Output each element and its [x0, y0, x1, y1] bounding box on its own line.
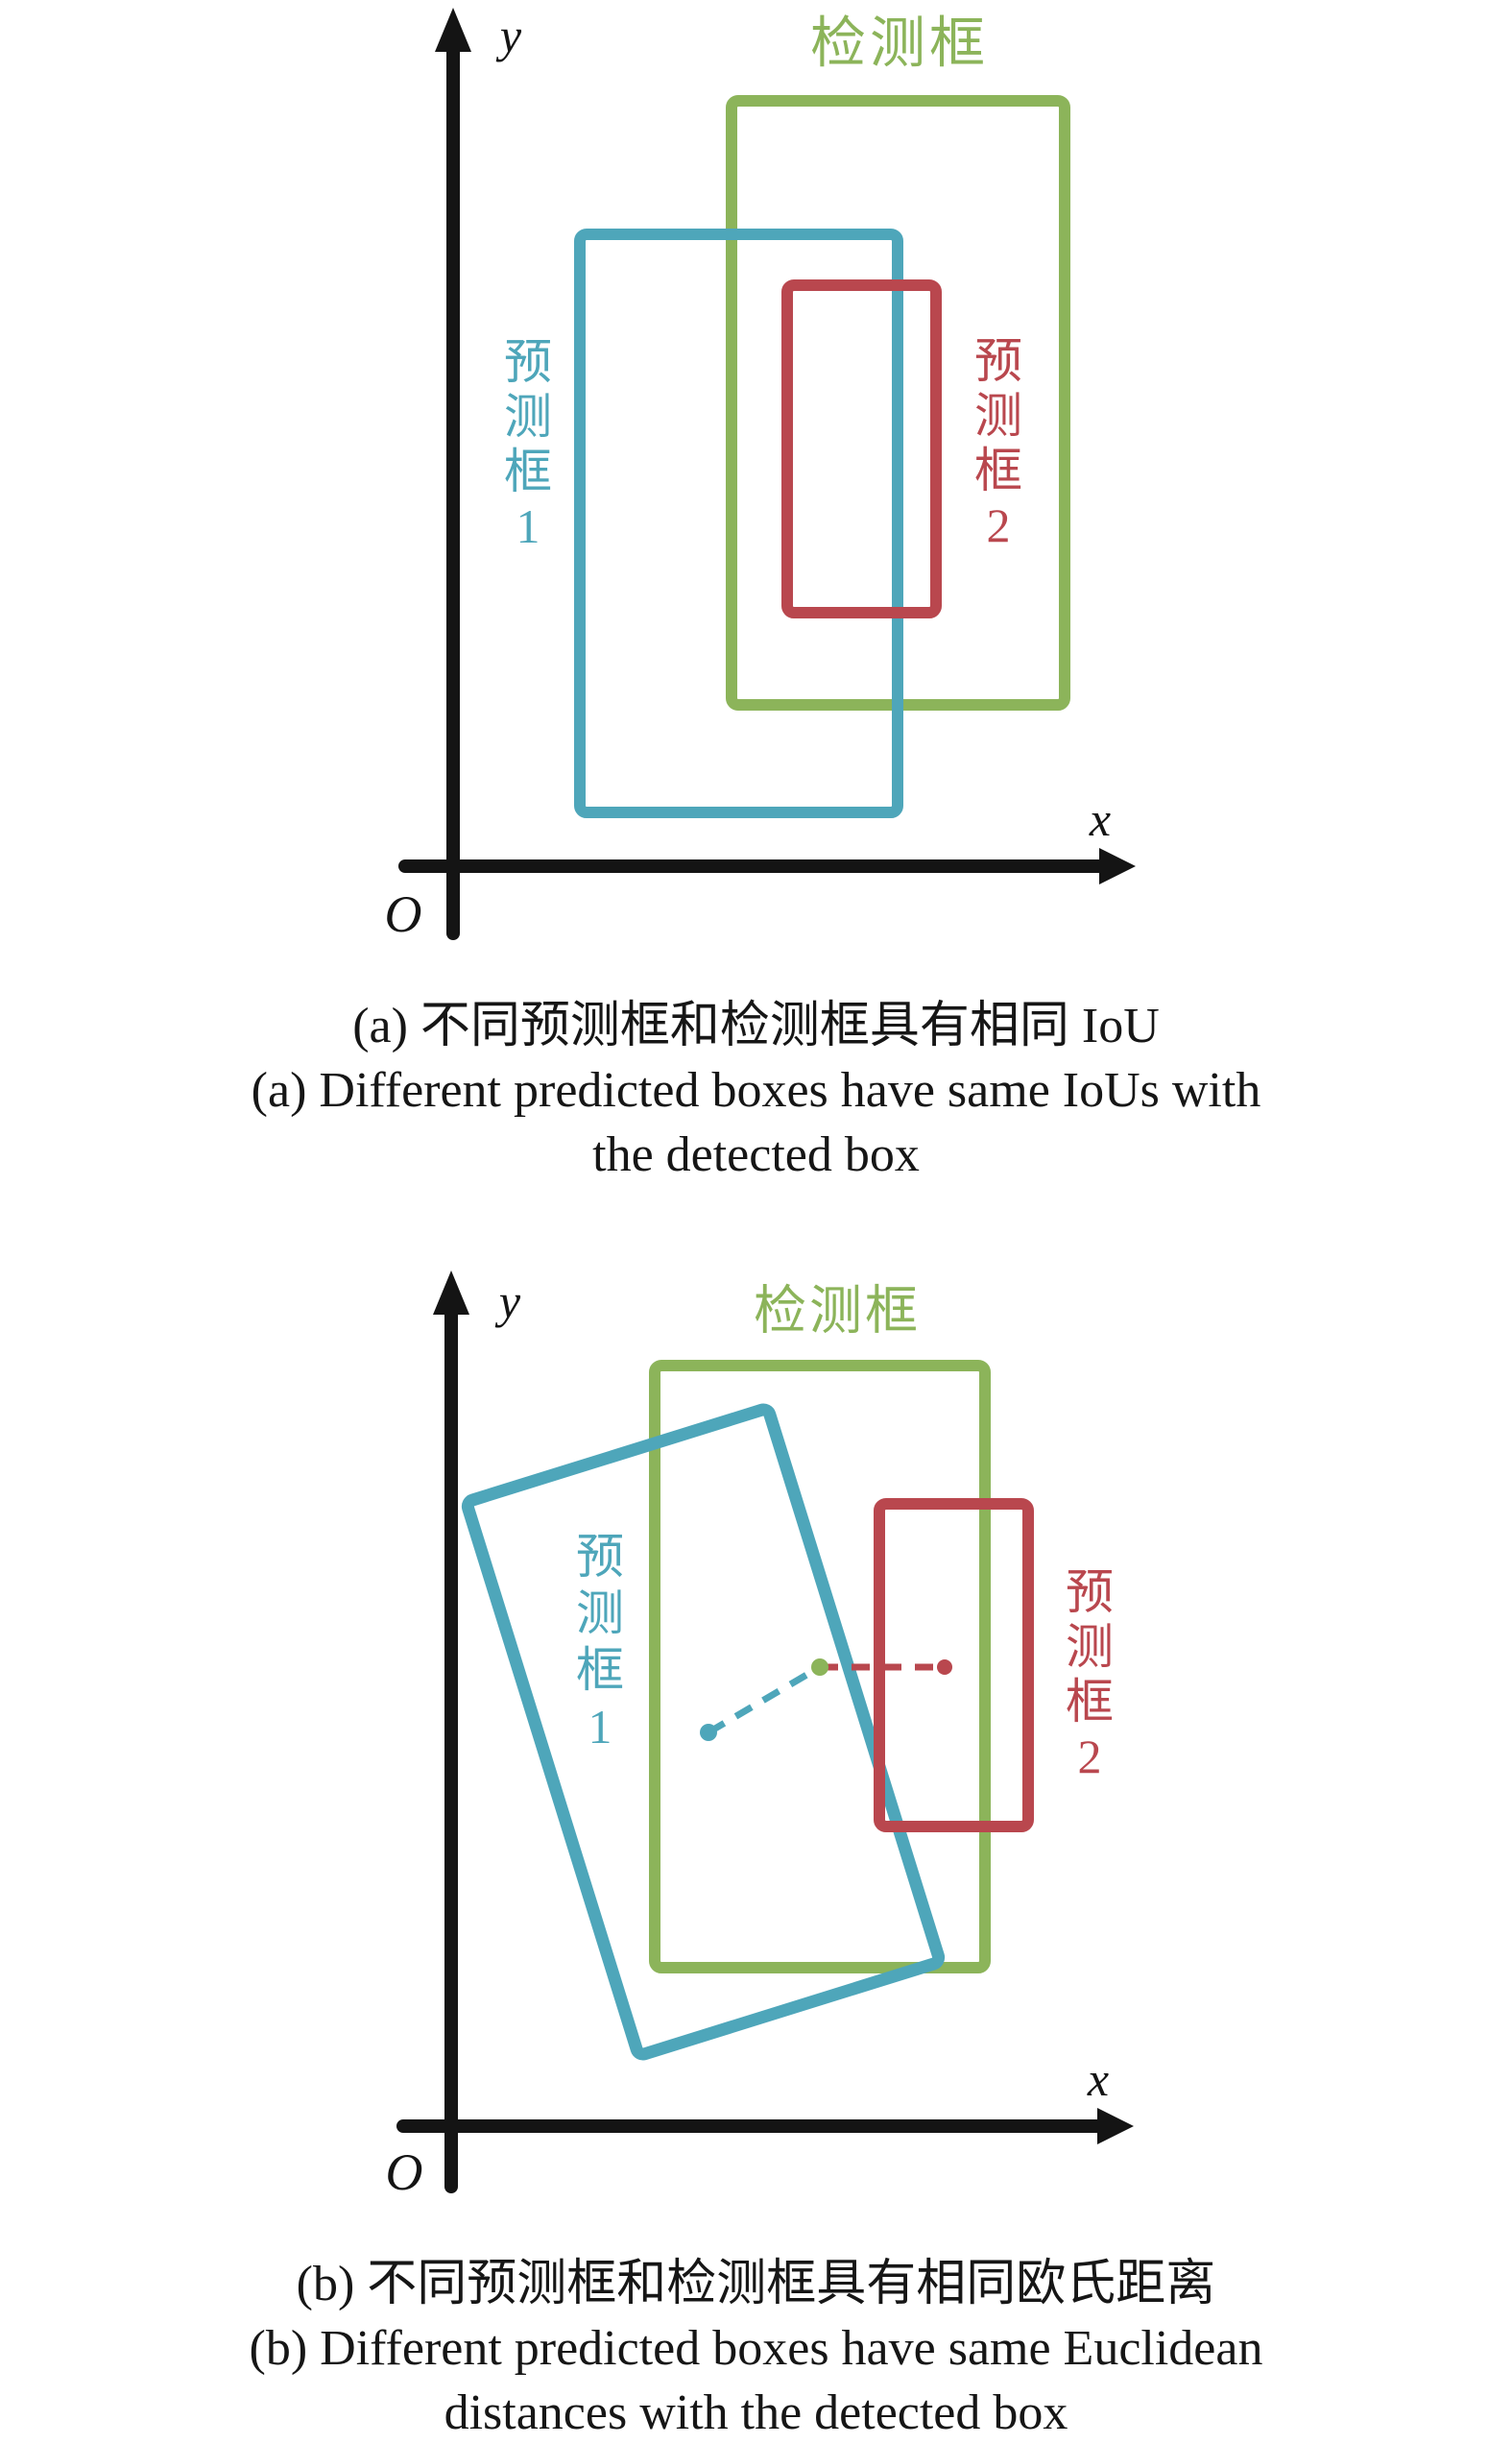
panel-b-detected-box-label: 检测框: [754, 1282, 921, 1341]
caption-b-line-en1: (b) Different predicted boxes have same …: [0, 2316, 1512, 2381]
panel-a-origin-label: O: [385, 885, 422, 943]
panel-a-x-axis-label: x: [1089, 792, 1111, 846]
panel-a-predicted-box-1-label-char-3: 1: [516, 499, 540, 553]
panel-a-predicted-box-2-label-char-1: 测: [974, 389, 1022, 443]
panel-a-predicted-box-1-label-char-2: 框: [504, 445, 552, 498]
panel-b-predicted-box-1-label-char-3: 1: [588, 1700, 612, 1754]
caption-b: (b) 不同预测框和检测框具有相同欧氏距离 (b) Different pred…: [0, 2252, 1512, 2444]
panel-a-predicted-box-1: [580, 234, 898, 812]
panel-b-y-axis-label: y: [494, 1274, 521, 1328]
figure-canvas: yxO检测框预测框1预测框2yxO检测框预测框1预测框2: [0, 0, 1512, 2444]
panel-b-x-axis-arrowhead-icon: [1097, 2108, 1134, 2144]
panel-b-y-axis-arrowhead-icon: [433, 1270, 469, 1315]
panel-a-predicted-box-2: [787, 285, 936, 613]
panel-b-origin-label: O: [386, 2143, 423, 2201]
panel-b-predicted-box-2-label-char-3: 2: [1078, 1730, 1102, 1783]
panel-b-predicted-box-1-label-char-1: 测: [576, 1586, 624, 1640]
panel-a-predicted-box-2-label-char-2: 框: [974, 444, 1022, 497]
panel-a-predicted-box-1-label-char-0: 预: [504, 335, 552, 389]
panel-b-predicted-box-2-label-char-2: 框: [1066, 1675, 1114, 1729]
panel-b-detected-box-center-dot: [811, 1658, 828, 1676]
panel-a-y-axis-label: y: [495, 9, 522, 62]
panel-a-detected-box-label: 检测框: [810, 12, 989, 75]
caption-a-line-en1: (a) Different predicted boxes have same …: [0, 1058, 1512, 1123]
panel-b-predicted-box-2-label-char-0: 预: [1066, 1565, 1114, 1619]
caption-a: (a) 不同预测框和检测框具有相同 IoU (a) Different pred…: [0, 994, 1512, 1187]
panel-a-x-axis-arrowhead-icon: [1099, 848, 1136, 884]
panel-b-predicted-box-2-label-char-1: 测: [1066, 1620, 1114, 1674]
caption-a-line-zh: (a) 不同预测框和检测框具有相同 IoU: [0, 994, 1512, 1058]
panel-a-predicted-box-2-label-char-3: 2: [987, 498, 1011, 552]
panel-a-predicted-box-1-label-char-1: 测: [504, 390, 552, 444]
caption-b-line-en2: distances with the detected box: [0, 2381, 1512, 2444]
panel-b-predicted-box-2-center-dot: [937, 1659, 952, 1675]
panel-b-x-axis-label: x: [1087, 2052, 1109, 2106]
figure-page: yxO检测框预测框1预测框2yxO检测框预测框1预测框2 (a) 不同预测框和检…: [0, 0, 1512, 2444]
panel-b-euclidean-distance-1: [708, 1667, 820, 1732]
panel-b-predicted-box-1-center-dot: [700, 1724, 717, 1741]
panel-a-y-axis-arrowhead-icon: [435, 8, 471, 52]
caption-b-line-zh: (b) 不同预测框和检测框具有相同欧氏距离: [0, 2252, 1512, 2316]
panel-b-predicted-box-2: [879, 1504, 1028, 1827]
caption-a-line-en2: the detected box: [0, 1123, 1512, 1187]
panel-a-predicted-box-2-label-char-0: 预: [974, 334, 1022, 388]
panel-b-predicted-box-1-label-char-0: 预: [576, 1530, 624, 1584]
panel-b-predicted-box-1-label-char-2: 框: [576, 1643, 624, 1697]
